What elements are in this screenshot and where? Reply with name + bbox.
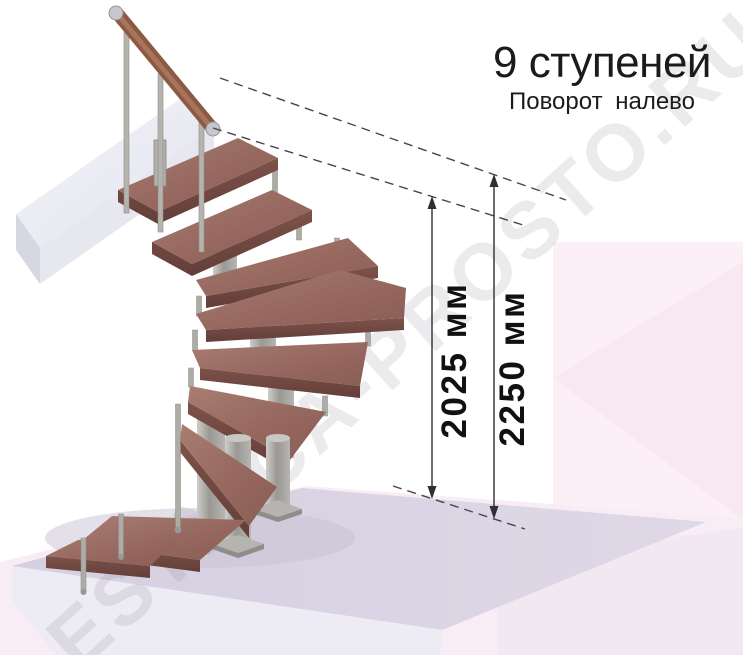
staircase-diagram-page: LESTNICA-PROSTO.RU [0,0,743,655]
baluster [158,74,163,232]
handrail-cap [109,6,123,20]
dimension-label-total-height: 2250 мм [493,283,533,453]
turn-direction-subtitle: Поворот налево [470,88,734,116]
steps-count-title: 9 ступеней [470,38,734,90]
baluster [199,112,204,252]
baluster [124,30,129,213]
pink-wall [553,242,743,520]
dimension-label-steps-height: 2025 мм [435,275,475,445]
